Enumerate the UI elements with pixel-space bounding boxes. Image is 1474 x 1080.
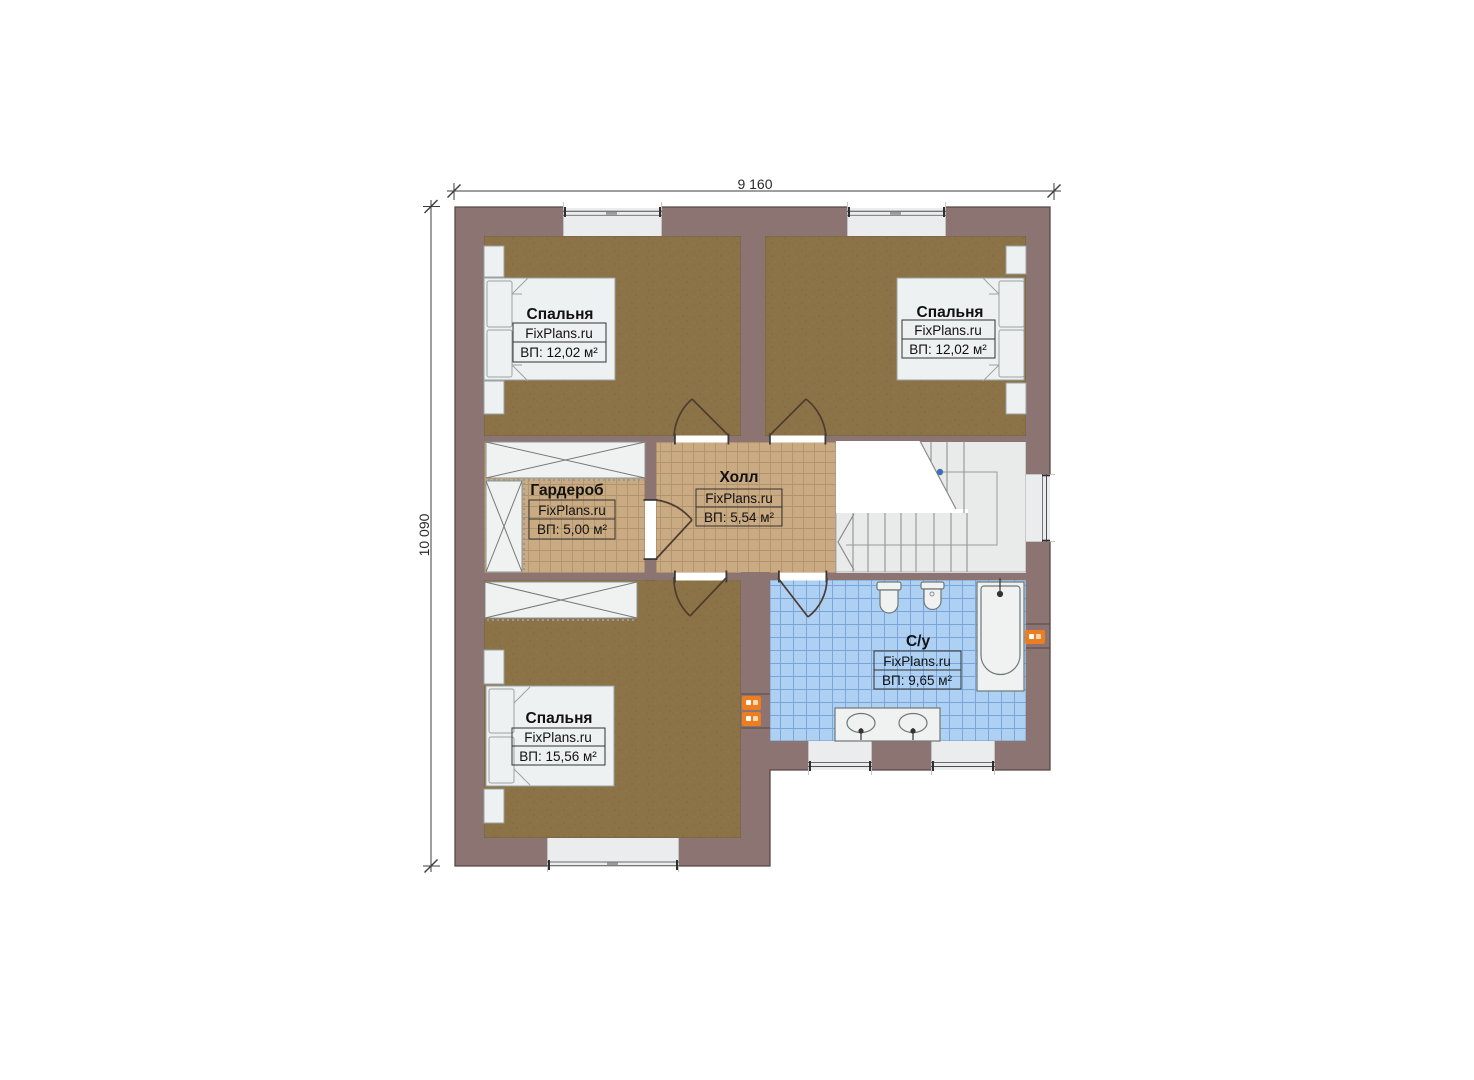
svg-text:FixPlans.ru: FixPlans.ru	[883, 654, 951, 669]
svg-text:9 160: 9 160	[737, 176, 772, 192]
svg-text:Спальня: Спальня	[527, 306, 594, 323]
svg-text:Спальня: Спальня	[526, 710, 593, 727]
svg-text:Спальня: Спальня	[917, 304, 984, 321]
svg-text:ВП: 12,02 м²: ВП: 12,02 м²	[520, 345, 598, 360]
svg-text:FixPlans.ru: FixPlans.ru	[705, 491, 773, 506]
svg-text:10 090: 10 090	[416, 513, 432, 556]
svg-text:FixPlans.ru: FixPlans.ru	[914, 323, 982, 338]
svg-text:ВП: 15,56 м²: ВП: 15,56 м²	[519, 749, 597, 764]
svg-text:Гардероб: Гардероб	[530, 482, 603, 499]
svg-text:ВП: 5,00 м²: ВП: 5,00 м²	[537, 522, 608, 537]
svg-text:С/у: С/у	[906, 633, 931, 650]
svg-text:ВП: 5,54 м²: ВП: 5,54 м²	[704, 510, 775, 525]
svg-text:FixPlans.ru: FixPlans.ru	[525, 326, 593, 341]
svg-text:Холл: Холл	[720, 469, 759, 486]
svg-text:ВП: 12,02 м²: ВП: 12,02 м²	[909, 342, 987, 357]
svg-text:FixPlans.ru: FixPlans.ru	[524, 730, 592, 745]
svg-text:FixPlans.ru: FixPlans.ru	[538, 503, 606, 518]
svg-text:ВП: 9,65 м²: ВП: 9,65 м²	[882, 673, 953, 688]
